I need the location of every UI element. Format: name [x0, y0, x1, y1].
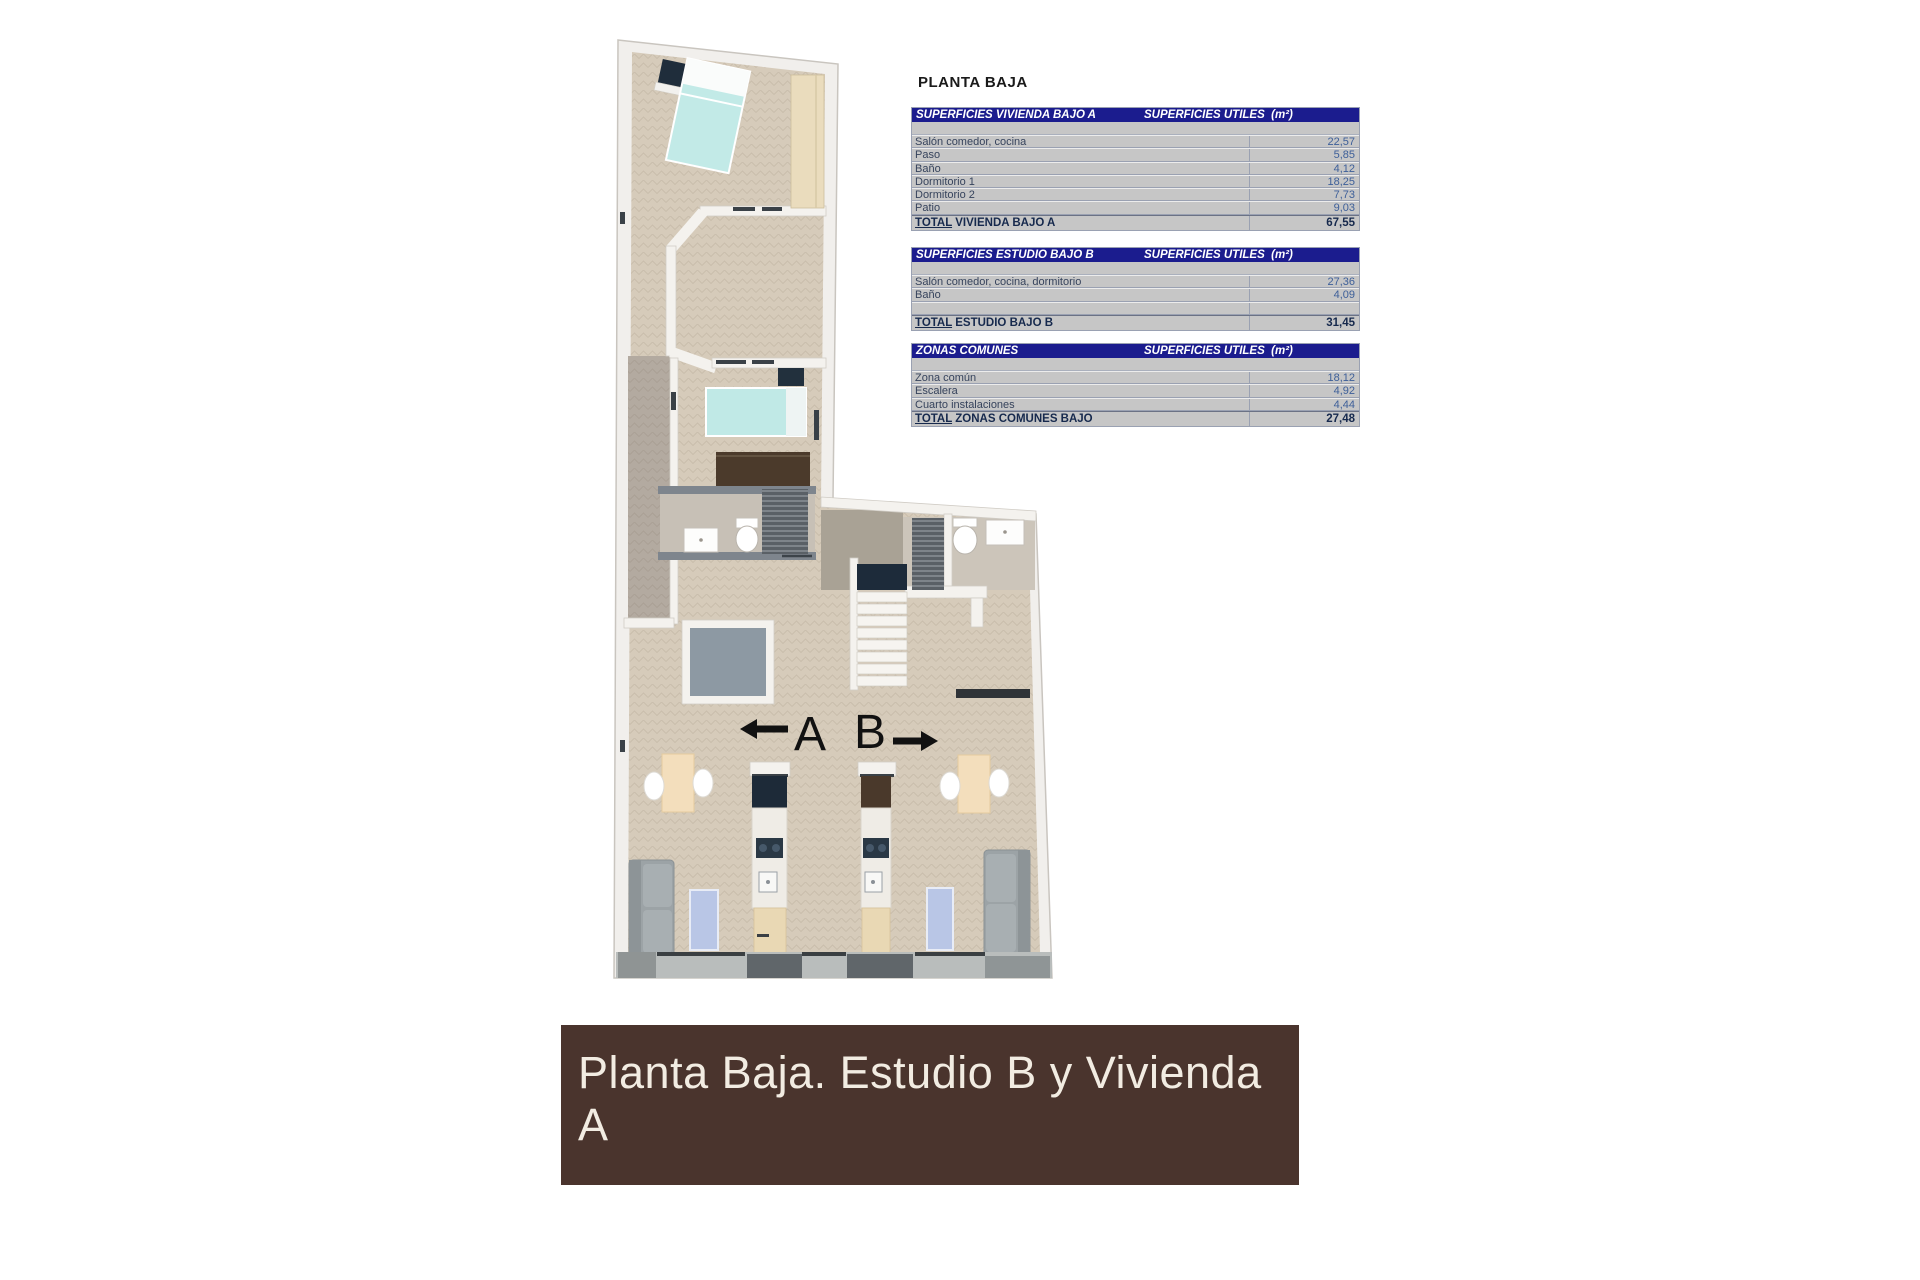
- row-label: Baño: [912, 289, 1249, 300]
- table-row: Baño4,12: [912, 162, 1359, 175]
- table-row: Dormitorio 118,25: [912, 175, 1359, 188]
- row-value: 27,36: [1249, 276, 1359, 287]
- row-value: 9,03: [1249, 202, 1359, 213]
- caption-text: Planta Baja. Estudio B y Vivienda A: [578, 1047, 1299, 1151]
- nightstand-2: [778, 368, 804, 386]
- row-label: Salón comedor, cocina: [912, 136, 1249, 147]
- table-spacer: [912, 122, 1359, 135]
- table-header-right: SUPERFICIES UTILES (m²): [1144, 248, 1293, 262]
- table-vivienda-a: SUPERFICIES VIVIENDA BAJO A SUPERFICIES …: [911, 107, 1360, 231]
- table-header-right: SUPERFICIES UTILES (m²): [1144, 344, 1293, 358]
- total-value: 27,48: [1249, 412, 1359, 426]
- table-row: Salón comedor, cocina, dormitorio27,36: [912, 275, 1359, 288]
- row-label: [912, 303, 1249, 314]
- table-header: SUPERFICIES ESTUDIO BAJO B SUPERFICIES U…: [912, 248, 1359, 262]
- table-header-left: SUPERFICIES VIVIENDA BAJO A: [916, 108, 1096, 122]
- row-label: Baño: [912, 163, 1249, 174]
- table-header-left: ZONAS COMUNES: [916, 344, 1018, 358]
- shower-unit: [762, 489, 808, 554]
- table-total-row: TOTAL ZONAS COMUNES BAJO 27,48: [912, 411, 1359, 426]
- table-row: Zona común18,12: [912, 371, 1359, 384]
- row-label: Patio: [912, 202, 1249, 213]
- table-total-row: TOTAL ESTUDIO BAJO B 31,45: [912, 315, 1359, 330]
- dining-table-a: [662, 754, 694, 812]
- table-row: Salón comedor, cocina22,57: [912, 135, 1359, 148]
- label-a: A: [794, 708, 826, 761]
- table-header-left: SUPERFICIES ESTUDIO BAJO B: [916, 248, 1094, 262]
- table-row: [912, 302, 1359, 315]
- table-row: Cuarto instalaciones4,44: [912, 398, 1359, 411]
- facade-wall: [616, 952, 1052, 978]
- table-header: ZONAS COMUNES SUPERFICIES UTILES (m²): [912, 344, 1359, 358]
- row-value: 18,12: [1249, 372, 1359, 383]
- table-row: Dormitorio 27,73: [912, 188, 1359, 201]
- stairs-up-striped: [912, 518, 944, 590]
- wardrobe-2: [716, 452, 810, 486]
- rug-a: [690, 890, 718, 950]
- chair: [940, 772, 960, 800]
- row-label: Cuarto instalaciones: [912, 399, 1249, 410]
- caption-banner: Planta Baja. Estudio B y Vivienda A: [561, 1025, 1299, 1185]
- row-value: 5,85: [1249, 149, 1359, 160]
- total-label: TOTAL ZONAS COMUNES BAJO: [912, 412, 1249, 426]
- kitchen-island-a-top: [752, 776, 787, 808]
- row-label: Escalera: [912, 385, 1249, 396]
- total-label: TOTAL ESTUDIO BAJO B: [912, 316, 1249, 330]
- row-label: Dormitorio 2: [912, 189, 1249, 200]
- table-spacer: [912, 262, 1359, 275]
- table-row: Escalera4,92: [912, 384, 1359, 397]
- table-header: SUPERFICIES VIVIENDA BAJO A SUPERFICIES …: [912, 108, 1359, 122]
- table-header-right: SUPERFICIES UTILES (m²): [1144, 108, 1293, 122]
- row-value: 4,44: [1249, 399, 1359, 410]
- table-zonas-comunes: ZONAS COMUNES SUPERFICIES UTILES (m²) Zo…: [911, 343, 1360, 427]
- row-label: Salón comedor, cocina, dormitorio: [912, 276, 1249, 287]
- row-value: 4,12: [1249, 163, 1359, 174]
- total-label: TOTAL VIVIENDA BAJO A: [912, 216, 1249, 230]
- row-label: Zona común: [912, 372, 1249, 383]
- row-value: 7,73: [1249, 189, 1359, 200]
- table-row: Patio9,03: [912, 201, 1359, 214]
- table-spacer: [912, 358, 1359, 371]
- row-label: Paso: [912, 149, 1249, 160]
- rug-b: [927, 888, 953, 950]
- row-label: Dormitorio 1: [912, 176, 1249, 187]
- total-value: 31,45: [1249, 316, 1359, 330]
- dining-table-b: [958, 755, 990, 813]
- bench: [956, 689, 1030, 698]
- table-total-row: TOTAL VIVIENDA BAJO A 67,55: [912, 215, 1359, 230]
- row-value: 18,25: [1249, 176, 1359, 187]
- table-row: Paso5,85: [912, 148, 1359, 161]
- kitchen-island-b-top: [861, 776, 891, 808]
- total-value: 67,55: [1249, 216, 1359, 230]
- label-b: B: [854, 706, 886, 759]
- page-title: PLANTA BAJA: [918, 74, 1028, 91]
- row-value: 4,09: [1249, 289, 1359, 300]
- patio: [682, 620, 774, 704]
- row-value: 4,92: [1249, 385, 1359, 396]
- chair: [693, 769, 713, 797]
- page: A B PLANTA BAJA SUPERFICIES VIVIENDA BAJ…: [0, 0, 1920, 1280]
- table-estudio-b: SUPERFICIES ESTUDIO BAJO B SUPERFICIES U…: [911, 247, 1360, 331]
- stairs-landing: [857, 564, 907, 590]
- wardrobe: [791, 75, 824, 208]
- table-row: Baño4,09: [912, 288, 1359, 301]
- toilet-a: [736, 526, 758, 552]
- row-value: 22,57: [1249, 136, 1359, 147]
- chair: [989, 769, 1009, 797]
- toilet-b: [953, 526, 977, 554]
- chair: [644, 772, 664, 800]
- row-value: [1249, 303, 1359, 314]
